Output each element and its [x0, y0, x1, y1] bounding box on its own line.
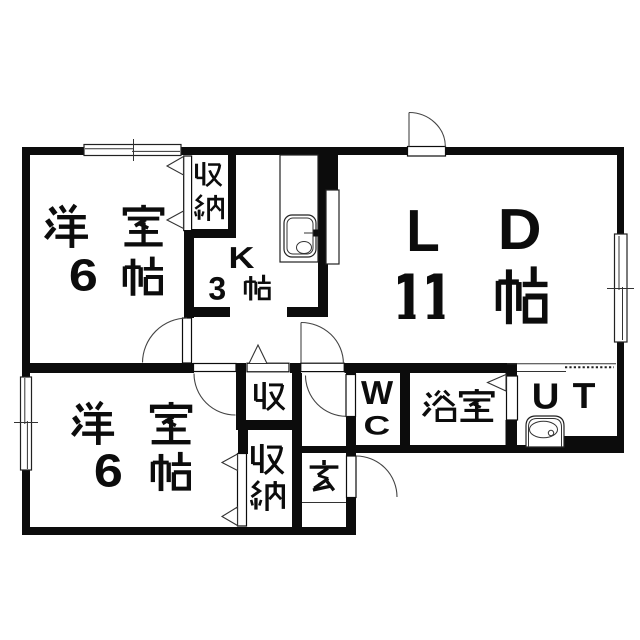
svg-text:D: D: [498, 197, 542, 262]
svg-text:6: 6: [69, 250, 98, 300]
svg-text:L: L: [406, 198, 440, 265]
svg-text:K: K: [229, 241, 255, 275]
svg-text:3: 3: [208, 271, 226, 307]
svg-text:T: T: [573, 375, 596, 416]
svg-text:U: U: [532, 376, 560, 417]
svg-text:6: 6: [94, 445, 123, 497]
svg-text:W: W: [361, 374, 393, 411]
svg-text:C: C: [364, 411, 391, 441]
